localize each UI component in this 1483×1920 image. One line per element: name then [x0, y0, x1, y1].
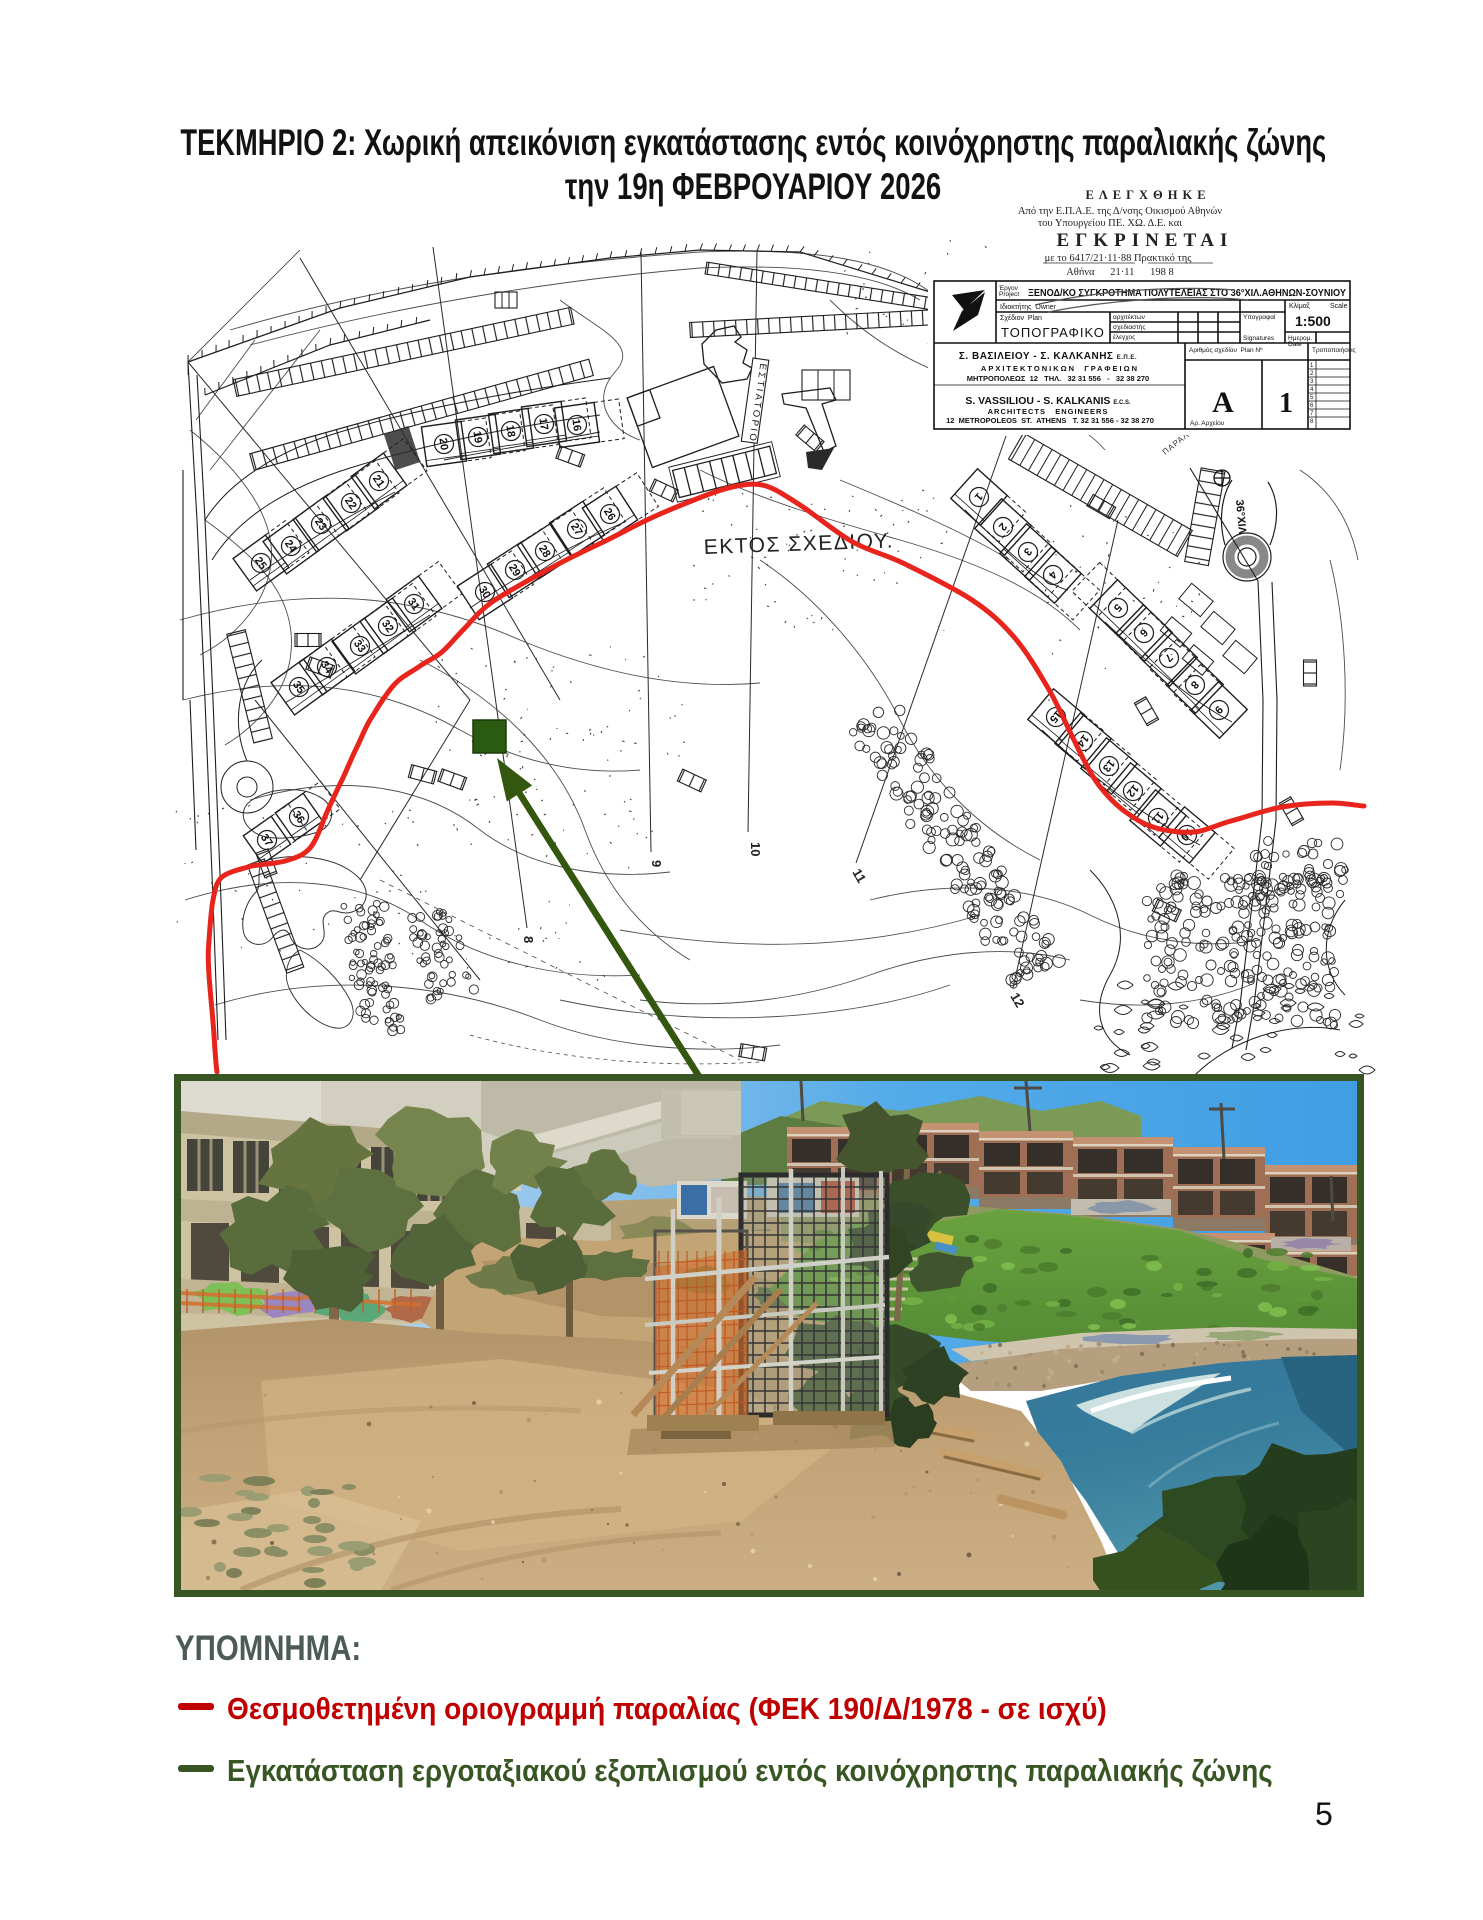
- svg-text:11: 11: [849, 866, 869, 885]
- svg-text:ΜΗΤΡΟΠΟΛΕΩΣ 12 ΤΗΛ. 32 31: ΜΗΤΡΟΠΟΛΕΩΣ 12 ΤΗΛ. 32 31 556 - 32 38 27…: [967, 374, 1149, 383]
- svg-text:16: 16: [569, 418, 583, 432]
- svg-text:Σχέδιον Plan: Σχέδιον Plan: [1000, 314, 1042, 322]
- svg-text:17: 17: [536, 417, 550, 431]
- svg-text:του Υπουργείου ΠΕ. ΧΩ. Δ.Ε. κα: του Υπουργείου ΠΕ. ΧΩ. Δ.Ε. και: [1038, 218, 1182, 229]
- svg-text:αρχιτέκτων: αρχιτέκτων: [1113, 313, 1145, 321]
- svg-text:με το 6417/21·11·88 Πρακτικό τ: με το 6417/21·11·88 Πρακτικό της: [1045, 253, 1193, 264]
- svg-text:1: 1: [972, 490, 985, 503]
- svg-text:8: 8: [521, 936, 536, 943]
- svg-text:20: 20: [436, 437, 450, 451]
- svg-text:8: 8: [1188, 678, 1201, 691]
- svg-text:6: 6: [1137, 626, 1150, 639]
- svg-text:1:500: 1:500: [1295, 313, 1331, 329]
- svg-text:ΕΓΚΡΙΝΕΤΑΙ: ΕΓΚΡΙΝΕΤΑΙ: [1057, 230, 1234, 251]
- svg-text:Ιδιοκτήτης Owner: Ιδιοκτήτης Owner: [1000, 304, 1057, 311]
- svg-text:2: 2: [996, 520, 1009, 533]
- svg-text:σχεδιαστής: σχεδιαστής: [1113, 324, 1145, 331]
- svg-text:ΕΚΤΟΣ ΣΧΕΔΙΟΥ.: ΕΚΤΟΣ ΣΧΕΔΙΟΥ.: [703, 529, 894, 559]
- svg-text:Από την Ε.Π.Α.Ε. της Δ/νσης Οι: Από την Ε.Π.Α.Ε. της Δ/νσης Οικισμού Αθη…: [1018, 206, 1222, 217]
- svg-text:Αρ. Αρχείου: Αρ. Αρχείου: [1190, 419, 1225, 427]
- svg-text:19: 19: [470, 430, 484, 444]
- svg-text:12: 12: [1007, 990, 1027, 1010]
- svg-text:Τροποποιήσεις: Τροποποιήσεις: [1312, 347, 1356, 354]
- svg-text:ΤΟΠΟΓΡΑΦΙΚΟ: ΤΟΠΟΓΡΑΦΙΚΟ: [1001, 325, 1105, 340]
- svg-text:Αριθμός σχεδίου Plan Nº: Αριθμός σχεδίου Plan Nº: [1189, 346, 1263, 354]
- svg-text:ΈργονProject: ΈργονProject: [998, 285, 1019, 298]
- svg-text:S. VASSILIOU - S. KALKANIS E.C: S. VASSILIOU - S. KALKANIS E.C.S.: [965, 395, 1131, 407]
- svg-text:7: 7: [1162, 651, 1175, 664]
- svg-text:1: 1: [1279, 388, 1293, 419]
- svg-text:ARCHITECTS ENGINEERS: ARCHITECTS ENGINEERS: [988, 407, 1109, 416]
- svg-text:3: 3: [1021, 545, 1034, 558]
- svg-text:έλεγχος: έλεγχος: [1113, 333, 1135, 341]
- svg-text:36°ΧΙΛ: 36°ΧΙΛ: [1233, 499, 1248, 535]
- svg-text:Signatures: Signatures: [1243, 335, 1275, 342]
- svg-text:5: 5: [1111, 601, 1124, 614]
- svg-text:12 METROPOLEOS ST. ATHENS: 12 METROPOLEOS ST. ATHENS T. 32 31 556 -…: [946, 416, 1154, 425]
- svg-text:18: 18: [503, 424, 517, 438]
- svg-text:ΕΛΕΓΧΘΗΚΕ: ΕΛΕΓΧΘΗΚΕ: [1085, 188, 1210, 202]
- svg-text:Σ. ΒΑΣΙΛΕΙΟΥ - Σ. ΚΑΛΚΑΝΗΣ Ε.Π: Σ. ΒΑΣΙΛΕΙΟΥ - Σ. ΚΑΛΚΑΝΗΣ Ε.Π.Ε.: [959, 351, 1137, 362]
- svg-text:ΑΡΧΙΤΕΚΤΟΝΙΚΩΝ ΓΡΑΦΕΙΩΝ: ΑΡΧΙΤΕΚΤΟΝΙΚΩΝ ΓΡΑΦΕΙΩΝ: [981, 364, 1139, 373]
- svg-text:4: 4: [1045, 568, 1059, 581]
- svg-text:10: 10: [748, 842, 763, 856]
- svg-text:Υπογραφαί: Υπογραφαί: [1243, 313, 1276, 321]
- svg-text:9: 9: [649, 860, 664, 867]
- svg-text:A: A: [1212, 386, 1234, 419]
